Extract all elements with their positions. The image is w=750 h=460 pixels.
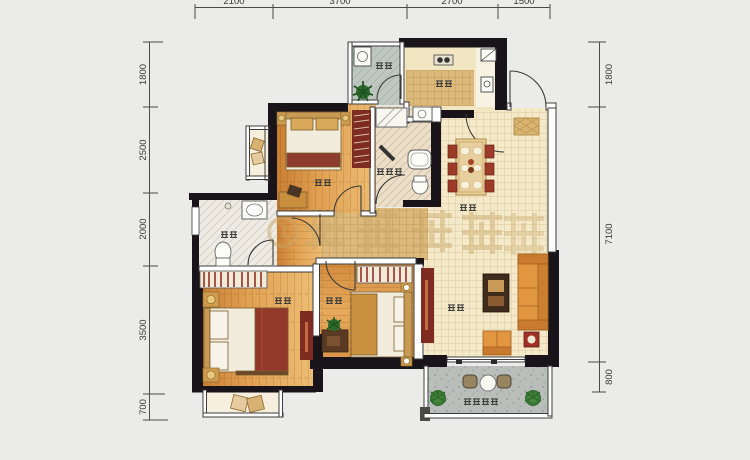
svg-text:1800: 1800 <box>138 64 149 85</box>
svg-text:2500: 2500 <box>138 139 149 160</box>
svg-text:7100: 7100 <box>604 223 615 244</box>
svg-text:2700: 2700 <box>441 0 462 7</box>
svg-text:800: 800 <box>604 369 615 385</box>
svg-text:2100: 2100 <box>223 0 244 7</box>
svg-text:3700: 3700 <box>329 0 350 7</box>
svg-text:1500: 1500 <box>513 0 534 7</box>
svg-text:3500: 3500 <box>138 319 149 340</box>
svg-text:1800: 1800 <box>604 64 615 85</box>
svg-text:700: 700 <box>138 399 149 415</box>
svg-text:2000: 2000 <box>138 218 149 239</box>
